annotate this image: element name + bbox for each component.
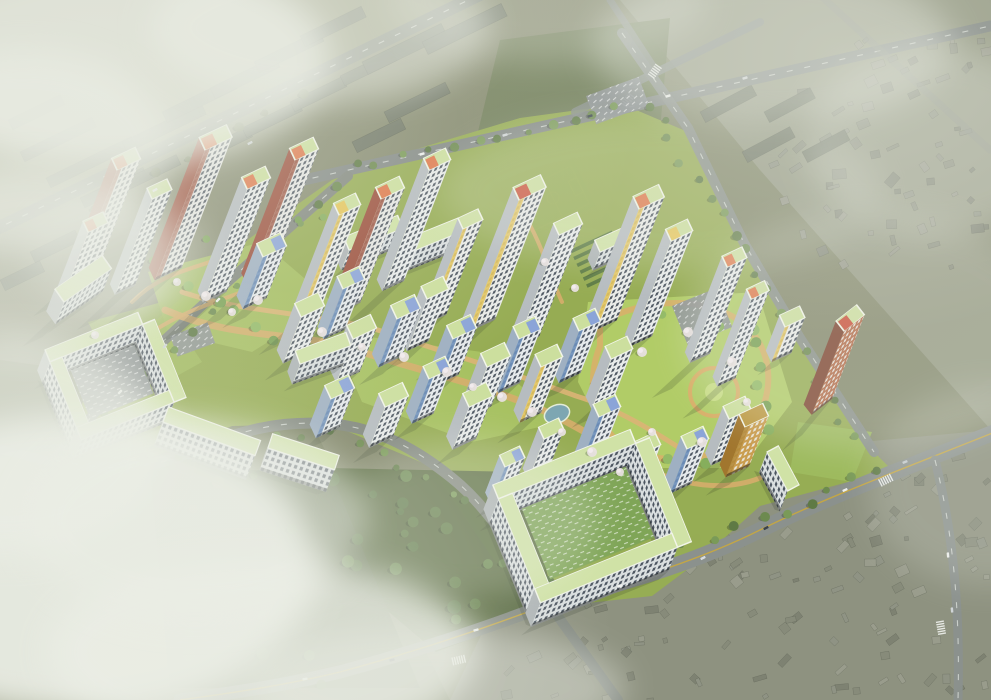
aerial-rendering-canvas	[0, 0, 991, 700]
aerial-rendering: Aerial bird's-eye architectural renderin…	[0, 0, 991, 700]
fog-layer	[0, 0, 991, 700]
mist-overlay	[0, 0, 991, 700]
